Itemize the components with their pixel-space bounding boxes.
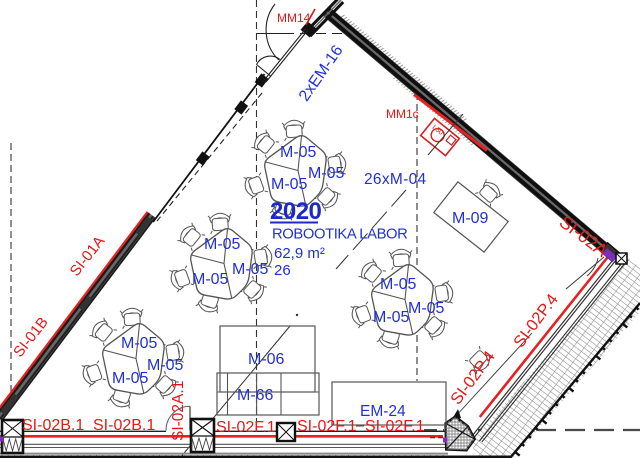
svg-text:M-05: M-05 xyxy=(380,276,417,293)
svg-text:M-05: M-05 xyxy=(280,144,317,161)
svg-text:M-05: M-05 xyxy=(192,271,229,288)
svg-text:M-05: M-05 xyxy=(204,236,241,253)
svg-text:M-06: M-06 xyxy=(248,351,285,368)
svg-text:SI-02F.1: SI-02F.1 xyxy=(216,419,276,436)
svg-text:26: 26 xyxy=(274,262,291,279)
svg-text:SI-02A.1: SI-02A.1 xyxy=(170,381,187,441)
svg-text:M-66: M-66 xyxy=(237,387,274,404)
svg-text:M-05: M-05 xyxy=(147,357,184,374)
svg-text:M-05: M-05 xyxy=(232,261,269,278)
svg-text:MM14: MM14 xyxy=(277,11,311,25)
svg-text:2020: 2020 xyxy=(270,198,322,225)
svg-text:SI-02F.1: SI-02F.1 xyxy=(297,418,357,435)
svg-text:M-05: M-05 xyxy=(308,165,345,182)
svg-text:M-05: M-05 xyxy=(271,176,308,193)
svg-text:MM1c: MM1c xyxy=(386,107,419,121)
svg-text:26xM-04: 26xM-04 xyxy=(364,171,426,188)
svg-text:M-05: M-05 xyxy=(408,300,445,317)
svg-text:62,9 m²: 62,9 m² xyxy=(274,245,325,262)
svg-text:SI-02F.1: SI-02F.1 xyxy=(365,418,425,435)
svg-text:M-05: M-05 xyxy=(373,309,410,326)
svg-text:ROBOOTIKA LABOR: ROBOOTIKA LABOR xyxy=(272,227,407,243)
svg-text:SI-02B.1: SI-02B.1 xyxy=(93,417,155,434)
svg-text:M-05: M-05 xyxy=(121,335,158,352)
svg-text:M-05: M-05 xyxy=(112,370,149,387)
svg-text:M-09: M-09 xyxy=(452,210,489,227)
svg-text:SI-02B.1: SI-02B.1 xyxy=(22,417,84,434)
